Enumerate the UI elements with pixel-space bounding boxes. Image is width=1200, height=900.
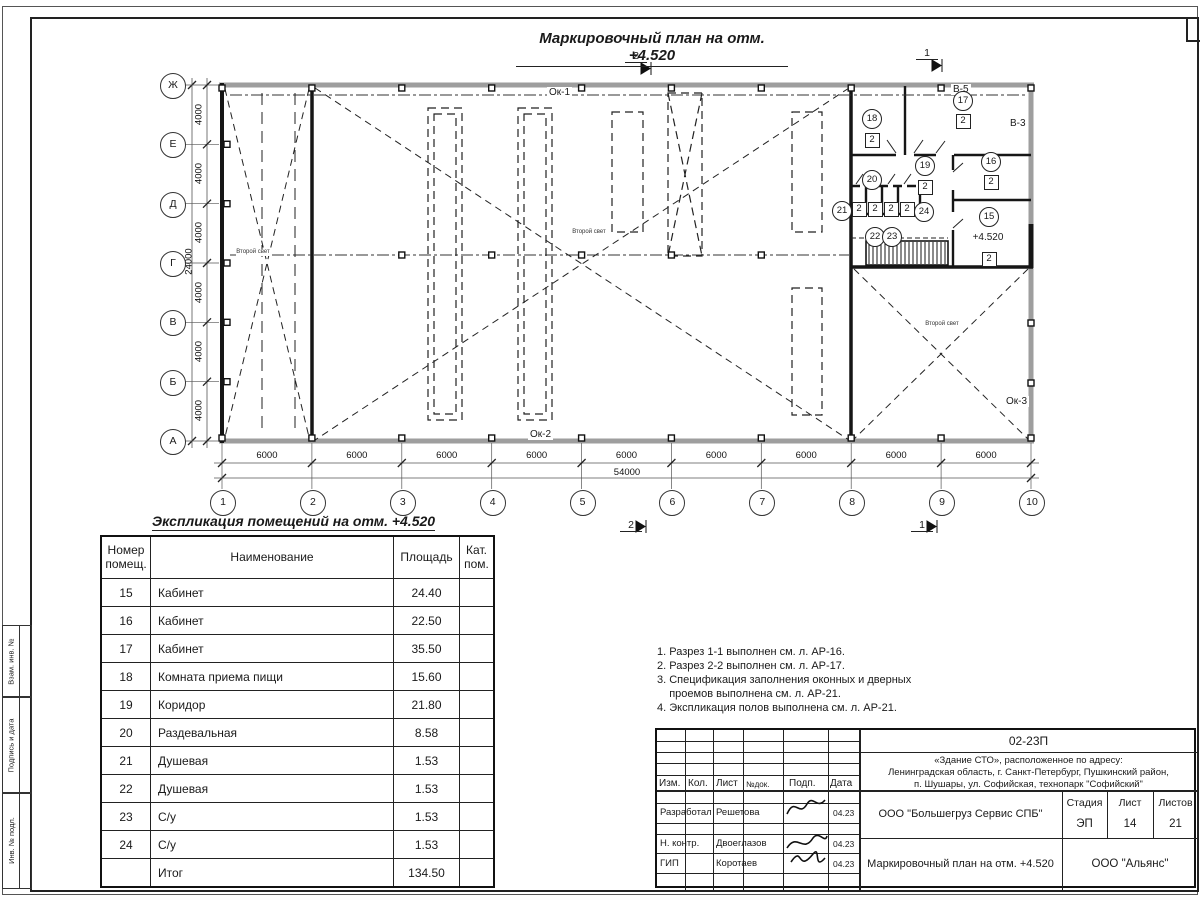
tb-name-gip: Коротаев <box>716 858 757 869</box>
second-light-label: Второй свет <box>925 321 959 328</box>
table-cell: 22 <box>101 775 151 803</box>
window-mark-ok3: Ок-3 <box>1004 396 1029 407</box>
second-light-label: Второй свет <box>236 249 270 256</box>
table-cell: 17 <box>101 635 151 663</box>
tb-address-line3: п. Шушары, ул. Софийская, технопарк "Соф… <box>861 779 1196 790</box>
grid-bubble-col: 3 <box>390 490 416 516</box>
note-line: проемов выполнена см. л. АР-21. <box>657 687 911 701</box>
room-number-bubble: 15 <box>979 207 999 227</box>
table-cell: 1.53 <box>394 831 460 859</box>
col-header-category: Кат. пом. <box>460 536 495 579</box>
table-cell: 19 <box>101 691 151 719</box>
dim-vertical: 4000 <box>194 330 205 374</box>
table-cell: 134.50 <box>394 859 460 888</box>
dim-horizontal: 6000 <box>781 450 831 461</box>
room-category-mark: 2 <box>956 114 971 129</box>
room-schedule-table: Номер помещ. Наименование Площадь Кат. п… <box>100 535 495 888</box>
dim-horizontal: 6000 <box>602 450 652 461</box>
table-cell: Комната приема пищи <box>151 663 394 691</box>
table-cell <box>460 803 495 831</box>
table-cell: 1.53 <box>394 803 460 831</box>
tb-col-kol: Кол. <box>688 778 708 789</box>
table-cell: Итог <box>151 859 394 888</box>
gate-mark-b3: В-3 <box>1008 118 1028 129</box>
tb-date-gip: 04.23 <box>833 859 854 869</box>
table-cell <box>460 663 495 691</box>
table-row: 21Душевая1.53 <box>101 747 494 775</box>
window-mark-ok2: Ок-2 <box>528 429 553 440</box>
grid-bubble-col: 8 <box>839 490 865 516</box>
dim-horizontal: 6000 <box>512 450 562 461</box>
table-row: 16Кабинет22.50 <box>101 607 494 635</box>
table-cell: Раздевальная <box>151 719 394 747</box>
tb-address-line2: Ленинградская область, г. Санкт-Петербур… <box>861 767 1196 778</box>
room-number-bubble: 17 <box>953 91 973 111</box>
table-cell <box>460 635 495 663</box>
table-cell <box>460 859 495 888</box>
table-row: 20Раздевальная8.58 <box>101 719 494 747</box>
tb-doc-number: 02-23П <box>859 734 1198 748</box>
table-cell: 8.58 <box>394 719 460 747</box>
table-cell: Кабинет <box>151 635 394 663</box>
title-block: Изм. Кол. Лист №док. Подп. Дата Разработ… <box>655 728 1196 888</box>
room-number-bubble: 23 <box>882 227 902 247</box>
table-row: Итог134.50 <box>101 859 494 888</box>
table-cell: 20 <box>101 719 151 747</box>
notes-block: 1. Разрез 1-1 выполнен см. л. АР-16.2. Р… <box>657 645 911 715</box>
tb-sheets-label: Листов <box>1153 797 1198 809</box>
tb-drawing-title: Маркировочный план на отм. +4.520 <box>859 858 1062 870</box>
room-number-bubble: 20 <box>862 170 882 190</box>
table-cell: 18 <box>101 663 151 691</box>
dim-horizontal: 6000 <box>332 450 382 461</box>
section-mark-2-top: 2 <box>625 50 647 63</box>
grid-bubble-row: Д <box>160 192 186 218</box>
room-number-bubble: 19 <box>915 156 935 176</box>
room-category-mark: 2 <box>982 252 997 267</box>
table-cell <box>460 831 495 859</box>
dim-horizontal: 6000 <box>242 450 292 461</box>
tb-sheets-value: 21 <box>1153 818 1198 830</box>
grid-bubble-col: 4 <box>480 490 506 516</box>
room-category-mark: 2 <box>884 202 899 217</box>
table-header-row: Номер помещ. Наименование Площадь Кат. п… <box>101 536 494 579</box>
tb-stage-value: ЭП <box>1062 818 1107 830</box>
table-cell <box>101 859 151 888</box>
tb-role-developed: Разработал <box>660 807 712 818</box>
tb-company: ООО "Альянс" <box>1062 858 1198 870</box>
room-category-mark: 2 <box>868 202 883 217</box>
table-cell: 21.80 <box>394 691 460 719</box>
grid-bubble-col: 5 <box>570 490 596 516</box>
room-category-mark: 2 <box>865 133 880 148</box>
tb-date-ncontrol: 04.23 <box>833 839 854 849</box>
table-cell: 1.53 <box>394 747 460 775</box>
dim-vertical: 4000 <box>194 270 205 314</box>
tb-col-data: Дата <box>830 778 852 789</box>
table-cell: Кабинет <box>151 607 394 635</box>
table-cell: 24.40 <box>394 579 460 607</box>
dim-vertical: 4000 <box>194 389 205 433</box>
table-cell: 15.60 <box>394 663 460 691</box>
col-header-area: Площадь <box>394 536 460 579</box>
total-dim-horizontal: 54000 <box>602 467 652 478</box>
table-cell: 21 <box>101 747 151 775</box>
tb-col-ndok: №док. <box>746 780 769 789</box>
grid-bubble-col: 1 <box>210 490 236 516</box>
table-cell: 35.50 <box>394 635 460 663</box>
table-cell <box>460 691 495 719</box>
table-cell: 16 <box>101 607 151 635</box>
grid-bubble-col: 9 <box>929 490 955 516</box>
table-cell: 15 <box>101 579 151 607</box>
second-light-label: Второй свет <box>572 229 606 236</box>
table-cell <box>460 775 495 803</box>
dim-horizontal: 6000 <box>871 450 921 461</box>
table-row: 17Кабинет35.50 <box>101 635 494 663</box>
tb-role-gip: ГИП <box>660 858 679 869</box>
table-cell <box>460 747 495 775</box>
section-mark-1-top: 1 <box>916 47 938 60</box>
col-header-number: Номер помещ. <box>101 536 151 579</box>
room-number-bubble: 24 <box>914 202 934 222</box>
grid-bubble-row: Б <box>160 370 186 396</box>
table-row: 22Душевая1.53 <box>101 775 494 803</box>
dim-horizontal: 6000 <box>691 450 741 461</box>
grid-bubble-row: А <box>160 429 186 455</box>
tb-sheet-label: Лист <box>1107 797 1153 809</box>
table-cell: Коридор <box>151 691 394 719</box>
room-table-body: 15Кабинет24.4016Кабинет22.5017Кабинет35.… <box>101 579 494 888</box>
table-cell: 1.53 <box>394 775 460 803</box>
dim-vertical: 4000 <box>194 92 205 136</box>
tb-address-line1: «Здание СТО», расположенное по адресу: <box>861 755 1196 766</box>
table-cell: Душевая <box>151 775 394 803</box>
tb-sheet-value: 14 <box>1107 818 1153 830</box>
table-cell: 24 <box>101 831 151 859</box>
section-mark-1-bottom: 1 <box>911 519 933 532</box>
room-number-bubble: 18 <box>862 109 882 129</box>
room-category-mark: 2 <box>852 202 867 217</box>
table-cell <box>460 579 495 607</box>
tb-col-izm: Изм. <box>659 778 680 789</box>
plan-title: Маркировочный план на отм. +4.520 <box>516 30 788 67</box>
note-line: 1. Разрез 1-1 выполнен см. л. АР-16. <box>657 645 911 659</box>
note-line: 3. Спецификация заполнения оконных и две… <box>657 673 911 687</box>
room-table-title: Экспликация помещений на отм. +4.520 <box>152 513 435 531</box>
tb-name-ncontrol: Двоеглазов <box>716 838 767 849</box>
tb-date-developed: 04.23 <box>833 808 854 818</box>
dim-vertical: 4000 <box>194 152 205 196</box>
room-category-mark: 2 <box>984 175 999 190</box>
table-cell: 22.50 <box>394 607 460 635</box>
room-number-bubble: 21 <box>832 201 852 221</box>
table-cell <box>460 607 495 635</box>
room-number-bubble: 16 <box>981 152 1001 172</box>
col-header-name: Наименование <box>151 536 394 579</box>
table-cell <box>460 719 495 747</box>
grid-bubble-col: 10 <box>1019 490 1045 516</box>
note-line: 4. Экспликация полов выполнена см. л. АР… <box>657 701 911 715</box>
table-row: 18Комната приема пищи15.60 <box>101 663 494 691</box>
tb-org: ООО "Большегруз Сервис СПБ" <box>859 808 1062 820</box>
tb-role-ncontrol: Н. контр. <box>660 838 699 849</box>
tb-col-list: Лист <box>716 778 738 789</box>
section-mark-2-bottom: 2 <box>620 519 642 532</box>
table-row: 23С/у1.53 <box>101 803 494 831</box>
table-row: 15Кабинет24.40 <box>101 579 494 607</box>
table-row: 24С/у1.53 <box>101 831 494 859</box>
table-cell: 23 <box>101 803 151 831</box>
dim-horizontal: 6000 <box>961 450 1011 461</box>
room-category-mark: 2 <box>900 202 915 217</box>
drawing-sheet: Взам. инв. № Подпись и дата Инв. № подл. <box>0 0 1200 900</box>
table-row: 19Коридор21.80 <box>101 691 494 719</box>
window-mark-ok1: Ок-1 <box>547 87 572 98</box>
tb-stage-label: Стадия <box>1062 797 1107 809</box>
grid-bubble-row: Г <box>160 251 186 277</box>
room-category-mark: 2 <box>918 180 933 195</box>
tb-col-podp: Подп. <box>789 778 816 789</box>
dim-vertical: 4000 <box>194 211 205 255</box>
tb-name-developed: Решетова <box>716 807 760 818</box>
table-cell: С/у <box>151 803 394 831</box>
grid-bubble-col: 2 <box>300 490 326 516</box>
table-cell: Кабинет <box>151 579 394 607</box>
note-line: 2. Разрез 2-2 выполнен см. л. АР-17. <box>657 659 911 673</box>
level-mark: +4.520 <box>966 232 1010 243</box>
table-cell: С/у <box>151 831 394 859</box>
table-cell: Душевая <box>151 747 394 775</box>
dim-horizontal: 6000 <box>422 450 472 461</box>
grid-bubble-row: Ж <box>160 73 186 99</box>
signature-strokes <box>783 792 829 888</box>
